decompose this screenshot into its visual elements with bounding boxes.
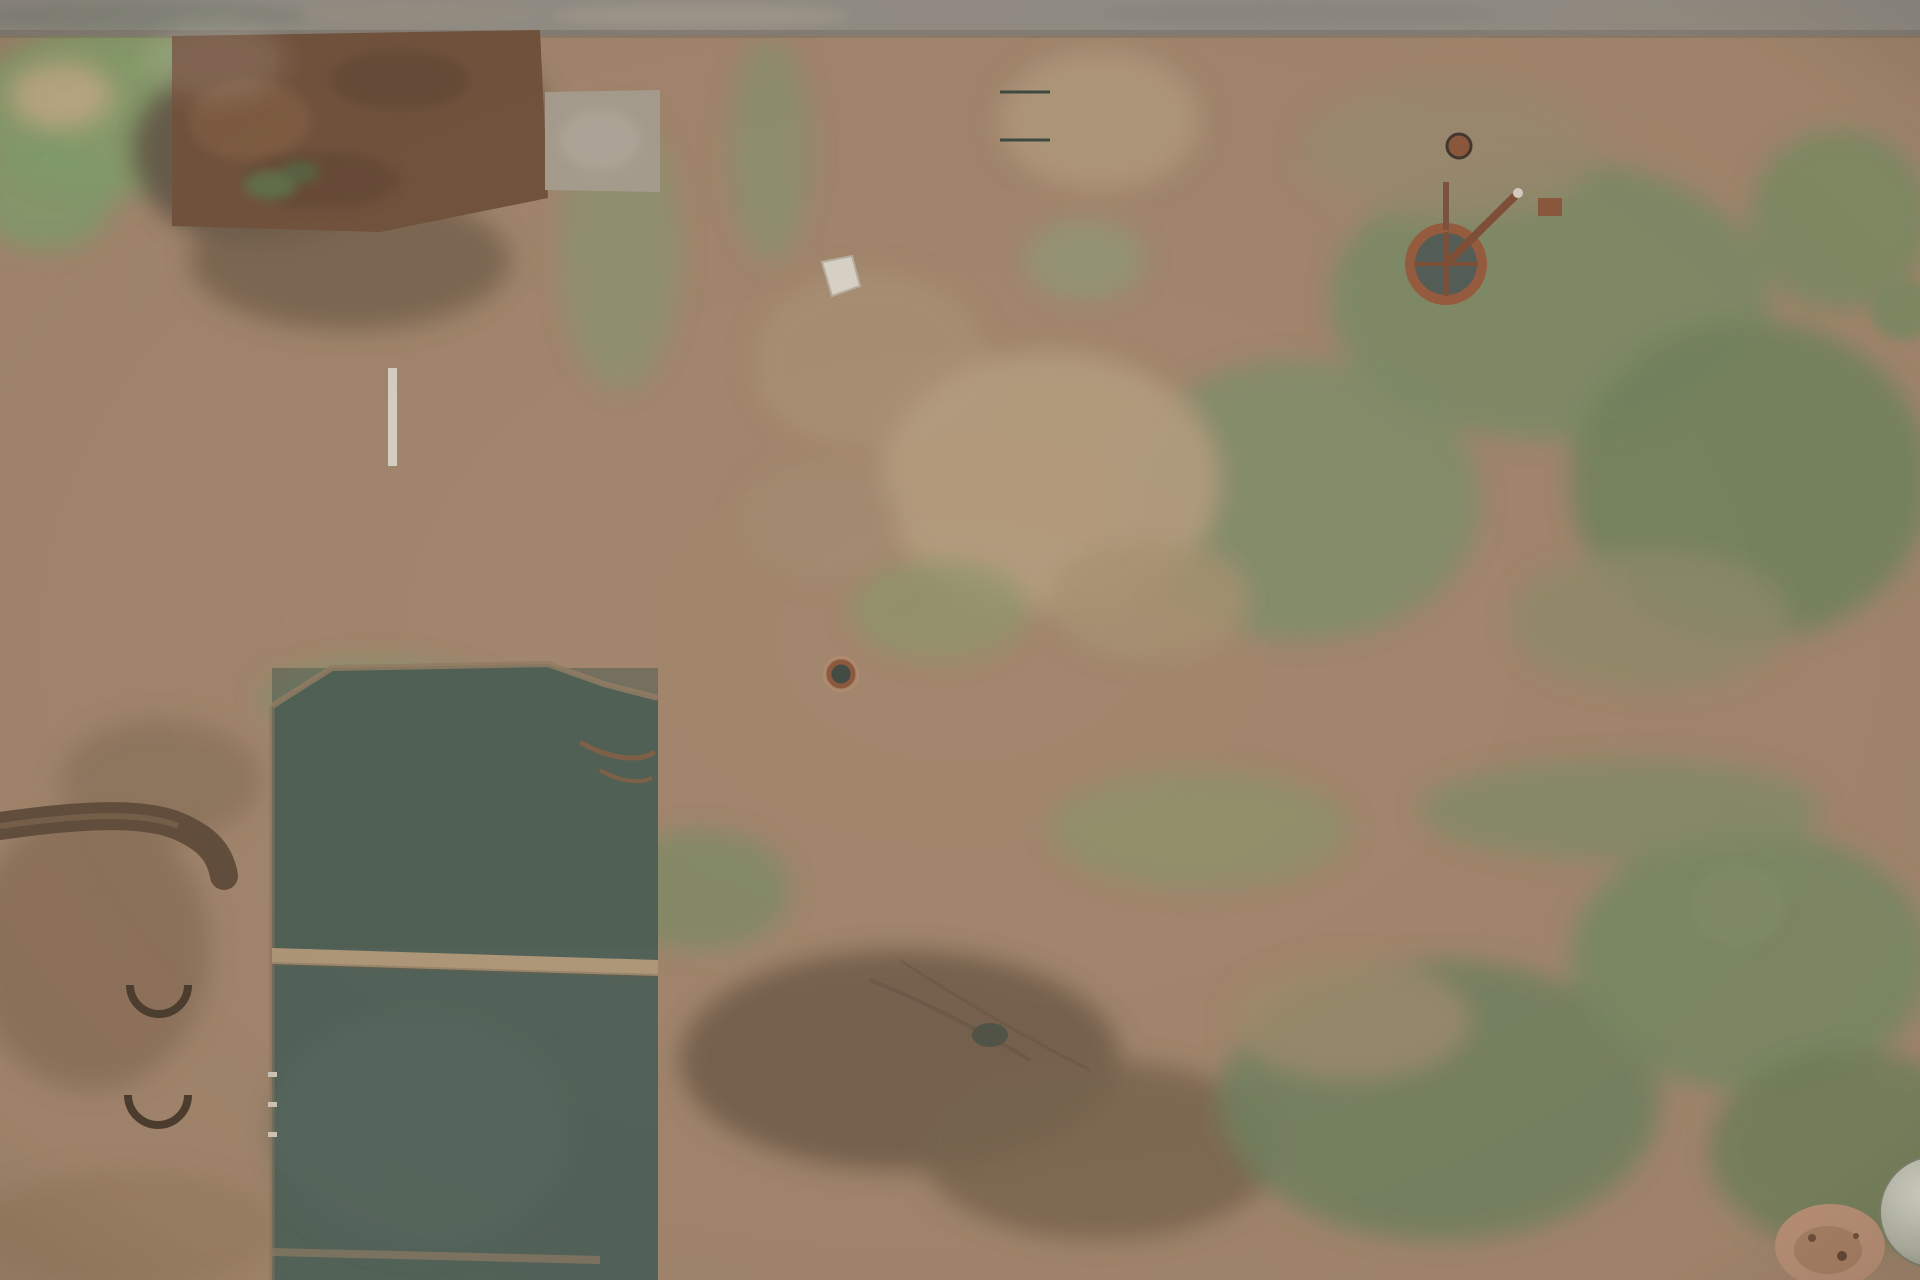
atmosphere [0, 0, 1920, 1280]
aerial-photo-stage [0, 0, 1920, 1280]
aerial-photo [0, 0, 1920, 1280]
